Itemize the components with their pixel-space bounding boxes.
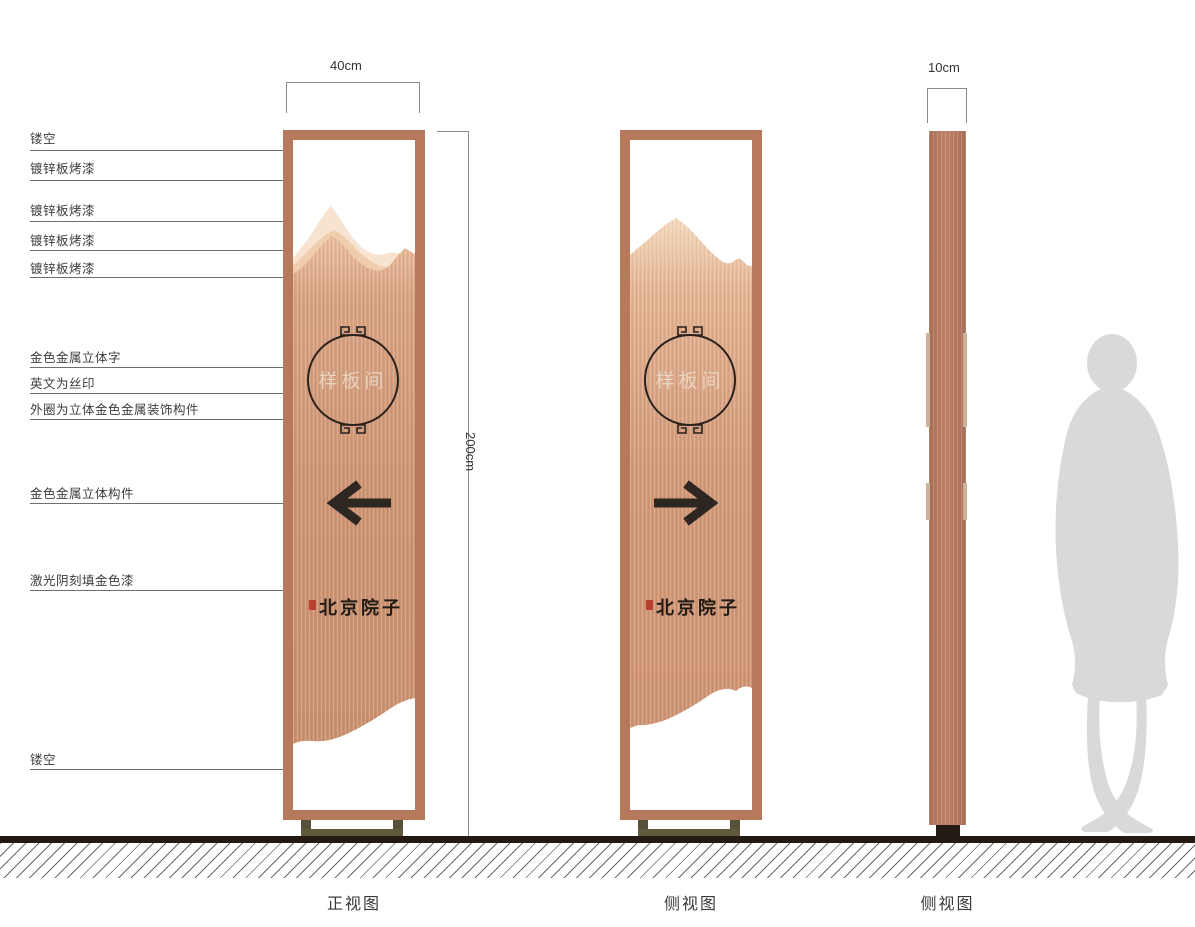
annotation-gold-component: 金色金属立体构件 <box>30 483 134 502</box>
brand-logo-text: 北京院子 <box>319 597 403 618</box>
leader-line <box>30 769 303 770</box>
red-seal-icon <box>309 600 316 610</box>
annotation-galvanized-1: 镀锌板烤漆 <box>30 158 95 177</box>
dimension-height-line <box>468 131 469 837</box>
side-edge-component <box>963 333 967 427</box>
side-view-panel: 样板间 北京院子 <box>630 140 752 810</box>
room-label-text: 样板间 <box>655 370 724 392</box>
annotation-hollow-bottom: 镂空 <box>30 749 56 768</box>
annotation-silkscreen: 英文为丝印 <box>30 373 95 392</box>
annotation-ring-component: 外圈为立体金色金属装饰构件 <box>30 399 199 418</box>
brushed-texture <box>630 218 752 728</box>
leader-line <box>30 277 293 278</box>
leader-line <box>30 590 318 591</box>
base-bar <box>638 829 740 836</box>
caption-side-view-2: 侧视图 <box>877 890 1018 914</box>
dimension-front-width: 40cm <box>330 58 362 73</box>
dimension-height: 200cm <box>463 432 478 471</box>
ground-line <box>0 836 1195 843</box>
leader-line <box>30 150 306 151</box>
leader-line <box>30 250 292 251</box>
dimension-side-depth: 10cm <box>928 60 960 75</box>
base-bar <box>301 829 403 836</box>
annotation-gold-letters: 金色金属立体字 <box>30 347 121 366</box>
brand-logo-text: 北京院子 <box>656 597 740 618</box>
profile-bar <box>929 131 966 825</box>
dimension-bracket-40cm <box>286 82 420 113</box>
side-edge-component <box>926 483 930 520</box>
caption-side-view-1: 侧视图 <box>620 890 762 914</box>
leader-line <box>30 419 313 420</box>
human-figure-silhouette <box>1040 333 1192 833</box>
annotation-galvanized-3: 镀锌板烤漆 <box>30 230 95 249</box>
side-edge-component <box>963 483 967 520</box>
annotation-hollow-top: 镂空 <box>30 128 56 147</box>
annotation-laser-engraved: 激光阴刻填金色漆 <box>30 570 134 589</box>
dimension-bracket-10cm <box>927 88 967 123</box>
caption-front-view: 正视图 <box>283 890 425 914</box>
design-sheet: 镂空 镀锌板烤漆 镀锌板烤漆 镀锌板烤漆 镀锌板烤漆 金色金属立体字 英文为丝印… <box>0 0 1195 927</box>
annotation-galvanized-2: 镀锌板烤漆 <box>30 200 95 219</box>
leader-line <box>30 221 323 222</box>
ground-hatch <box>0 843 1195 878</box>
dimension-extension-line <box>437 131 468 132</box>
side-edge-component <box>926 333 930 427</box>
room-label-text: 样板间 <box>318 370 387 392</box>
leader-line <box>30 180 283 181</box>
red-seal-icon <box>646 600 653 610</box>
annotation-galvanized-4: 镀锌板烤漆 <box>30 258 95 277</box>
front-view-panel: 样板间 北京院子 <box>293 140 415 810</box>
